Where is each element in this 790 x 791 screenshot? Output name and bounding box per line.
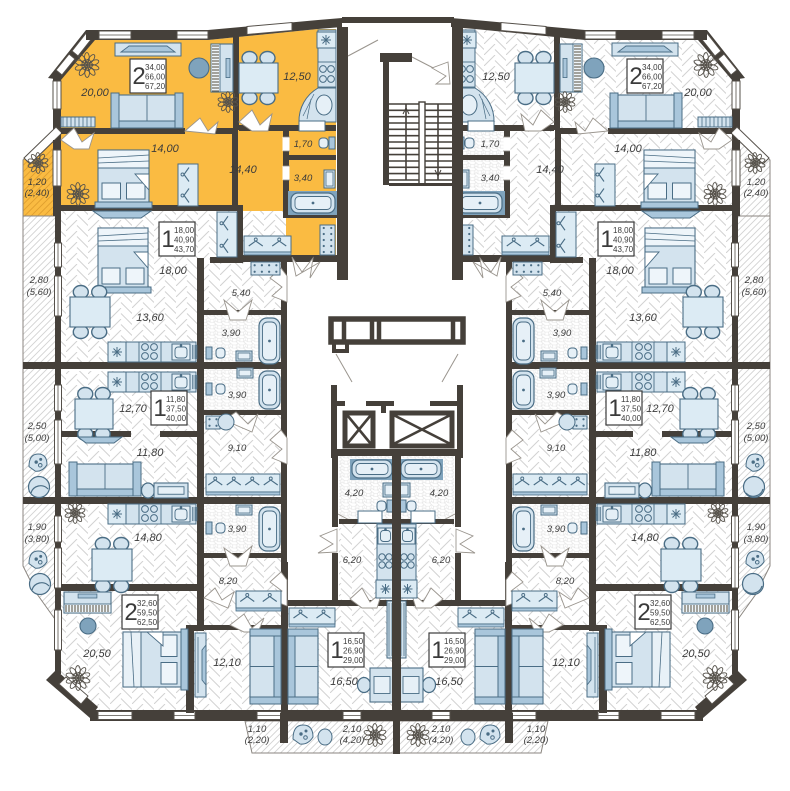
svg-text:(3,80): (3,80) xyxy=(25,534,50,545)
svg-text:2,80: 2,80 xyxy=(29,275,49,286)
svg-text:2: 2 xyxy=(629,63,642,90)
svg-text:16,50: 16,50 xyxy=(444,637,465,646)
svg-text:26,90: 26,90 xyxy=(444,647,465,656)
svg-text:43,70: 43,70 xyxy=(174,245,195,254)
svg-text:5,40: 5,40 xyxy=(232,288,251,299)
svg-text:8,20: 8,20 xyxy=(219,576,238,587)
svg-text:(2,20): (2,20) xyxy=(245,735,270,746)
svg-text:14,80: 14,80 xyxy=(631,532,659,544)
svg-text:(4,20): (4,20) xyxy=(429,735,454,746)
svg-text:66,00: 66,00 xyxy=(642,73,663,82)
svg-text:3,90: 3,90 xyxy=(553,328,572,339)
svg-text:40,00: 40,00 xyxy=(621,414,642,423)
svg-text:11,80: 11,80 xyxy=(621,395,641,404)
svg-text:3,90: 3,90 xyxy=(547,390,566,401)
svg-text:59,50: 59,50 xyxy=(650,609,671,618)
svg-text:16,50: 16,50 xyxy=(343,637,364,646)
svg-text:13,60: 13,60 xyxy=(629,312,657,324)
svg-text:16,50: 16,50 xyxy=(435,676,463,688)
svg-text:14,80: 14,80 xyxy=(134,532,162,544)
svg-text:11,80: 11,80 xyxy=(166,395,186,404)
svg-text:2,10: 2,10 xyxy=(431,724,451,735)
svg-text:(3,80): (3,80) xyxy=(744,534,769,545)
svg-text:29,00: 29,00 xyxy=(444,656,465,665)
svg-text:20,50: 20,50 xyxy=(82,648,111,660)
svg-text:3,90: 3,90 xyxy=(222,328,241,339)
svg-text:1,90: 1,90 xyxy=(28,522,47,533)
svg-text:2: 2 xyxy=(132,63,145,90)
svg-text:16,50: 16,50 xyxy=(330,676,358,688)
svg-text:12,50: 12,50 xyxy=(482,71,510,83)
svg-text:29,00: 29,00 xyxy=(343,656,364,665)
svg-text:1,20: 1,20 xyxy=(28,177,47,188)
svg-text:59,50: 59,50 xyxy=(137,609,158,618)
svg-text:18,00: 18,00 xyxy=(606,265,634,277)
svg-text:37,50: 37,50 xyxy=(166,405,187,414)
svg-text:67,20: 67,20 xyxy=(642,82,663,91)
svg-text:12,50: 12,50 xyxy=(283,71,311,83)
svg-text:14,00: 14,00 xyxy=(614,143,642,155)
svg-text:1,70: 1,70 xyxy=(481,139,500,150)
svg-text:2,50: 2,50 xyxy=(27,421,47,432)
svg-text:14,00: 14,00 xyxy=(151,143,179,155)
svg-text:(5,00): (5,00) xyxy=(25,433,50,444)
svg-text:4,20: 4,20 xyxy=(430,488,449,499)
svg-text:(5,60): (5,60) xyxy=(742,287,767,298)
svg-text:5,40: 5,40 xyxy=(543,288,562,299)
svg-text:34,00: 34,00 xyxy=(642,63,663,72)
svg-text:1: 1 xyxy=(153,395,166,422)
svg-text:66,00: 66,00 xyxy=(145,73,166,82)
svg-text:2: 2 xyxy=(124,599,137,626)
svg-text:20,50: 20,50 xyxy=(681,648,710,660)
svg-text:40,90: 40,90 xyxy=(174,236,195,245)
svg-text:20,00: 20,00 xyxy=(683,87,712,99)
svg-text:3,90: 3,90 xyxy=(228,524,247,535)
svg-text:20,00: 20,00 xyxy=(80,87,109,99)
svg-text:2: 2 xyxy=(637,599,650,626)
svg-text:40,90: 40,90 xyxy=(613,236,634,245)
svg-text:9,10: 9,10 xyxy=(228,443,247,454)
svg-text:(2,20): (2,20) xyxy=(524,735,549,746)
svg-text:32,60: 32,60 xyxy=(137,599,158,608)
svg-text:1: 1 xyxy=(161,226,174,253)
svg-text:1: 1 xyxy=(330,637,343,664)
svg-text:1,10: 1,10 xyxy=(527,724,546,735)
svg-text:14,40: 14,40 xyxy=(536,164,564,176)
svg-text:3,40: 3,40 xyxy=(294,173,313,184)
svg-text:12,70: 12,70 xyxy=(119,403,147,415)
svg-text:2,80: 2,80 xyxy=(744,275,764,286)
svg-text:6,20: 6,20 xyxy=(343,555,362,566)
svg-text:26,90: 26,90 xyxy=(343,647,364,656)
svg-text:11,80: 11,80 xyxy=(630,447,658,459)
svg-text:14,40: 14,40 xyxy=(229,164,257,176)
svg-text:4,20: 4,20 xyxy=(345,488,364,499)
svg-text:1: 1 xyxy=(608,395,621,422)
svg-text:1,90: 1,90 xyxy=(747,522,766,533)
svg-text:62,50: 62,50 xyxy=(650,618,671,627)
svg-text:37,50: 37,50 xyxy=(621,405,642,414)
svg-text:3,90: 3,90 xyxy=(228,390,247,401)
svg-text:6,20: 6,20 xyxy=(432,555,451,566)
svg-text:12,10: 12,10 xyxy=(552,657,580,669)
svg-text:(5,60): (5,60) xyxy=(27,287,52,298)
svg-text:1,20: 1,20 xyxy=(747,177,766,188)
svg-text:62,50: 62,50 xyxy=(137,618,158,627)
svg-text:2,50: 2,50 xyxy=(746,421,766,432)
svg-text:12,10: 12,10 xyxy=(213,657,241,669)
svg-text:(2,40): (2,40) xyxy=(744,188,769,199)
svg-text:18,00: 18,00 xyxy=(174,226,195,235)
svg-text:3,90: 3,90 xyxy=(547,524,566,535)
svg-text:8,20: 8,20 xyxy=(556,576,575,587)
svg-text:(4,20): (4,20) xyxy=(340,735,365,746)
svg-text:(2,40): (2,40) xyxy=(25,188,50,199)
svg-text:40,00: 40,00 xyxy=(166,414,187,423)
svg-text:2,10: 2,10 xyxy=(342,724,362,735)
svg-text:43,70: 43,70 xyxy=(613,245,634,254)
svg-text:3,40: 3,40 xyxy=(481,173,500,184)
svg-text:1,10: 1,10 xyxy=(248,724,267,735)
svg-text:67,20: 67,20 xyxy=(145,82,166,91)
svg-text:34,00: 34,00 xyxy=(145,63,166,72)
svg-text:32,60: 32,60 xyxy=(650,599,671,608)
svg-text:12,70: 12,70 xyxy=(646,403,674,415)
svg-text:13,60: 13,60 xyxy=(136,312,164,324)
svg-text:9,10: 9,10 xyxy=(547,443,566,454)
svg-text:18,00: 18,00 xyxy=(159,265,187,277)
svg-text:1: 1 xyxy=(600,226,613,253)
svg-text:18,00: 18,00 xyxy=(613,226,634,235)
svg-text:1: 1 xyxy=(431,637,444,664)
svg-text:(5,00): (5,00) xyxy=(744,433,769,444)
svg-text:11,80: 11,80 xyxy=(137,447,165,459)
svg-text:1,70: 1,70 xyxy=(294,139,313,150)
